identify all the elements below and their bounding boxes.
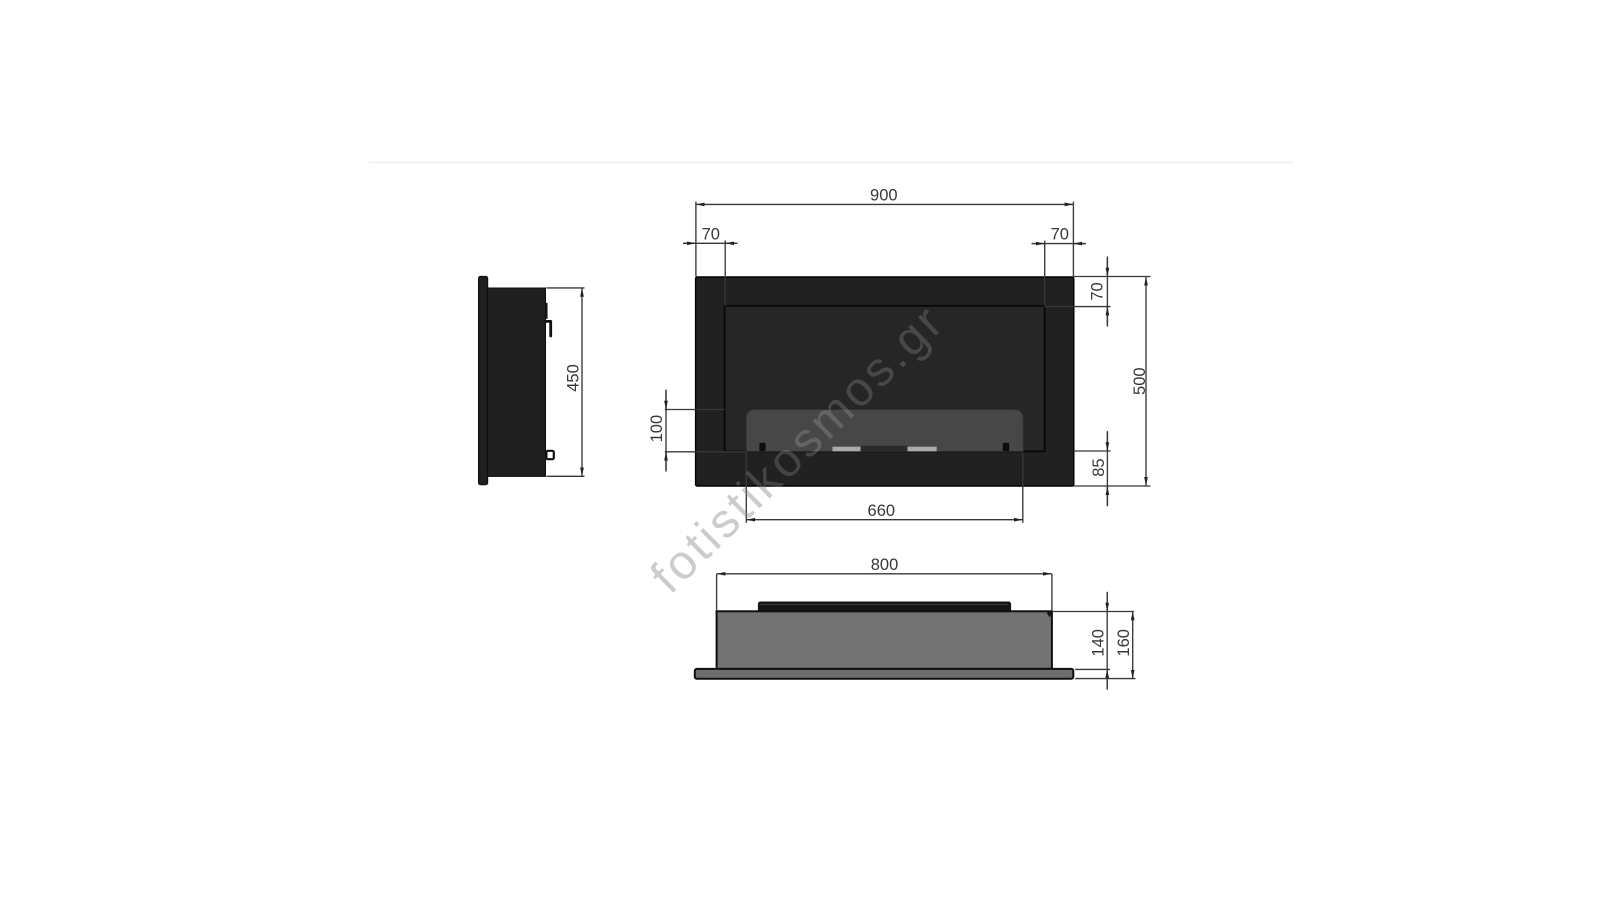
svg-text:800: 800 [871,556,899,574]
svg-text:160: 160 [1115,629,1133,657]
svg-text:70: 70 [1051,225,1069,243]
svg-text:900: 900 [870,187,898,205]
svg-text:70: 70 [702,225,720,243]
svg-text:70: 70 [1089,282,1107,300]
svg-text:100: 100 [648,415,666,443]
svg-text:85: 85 [1090,458,1108,476]
svg-text:660: 660 [868,502,896,520]
svg-text:140: 140 [1090,629,1108,657]
svg-text:500: 500 [1131,367,1149,395]
svg-text:450: 450 [565,364,583,392]
